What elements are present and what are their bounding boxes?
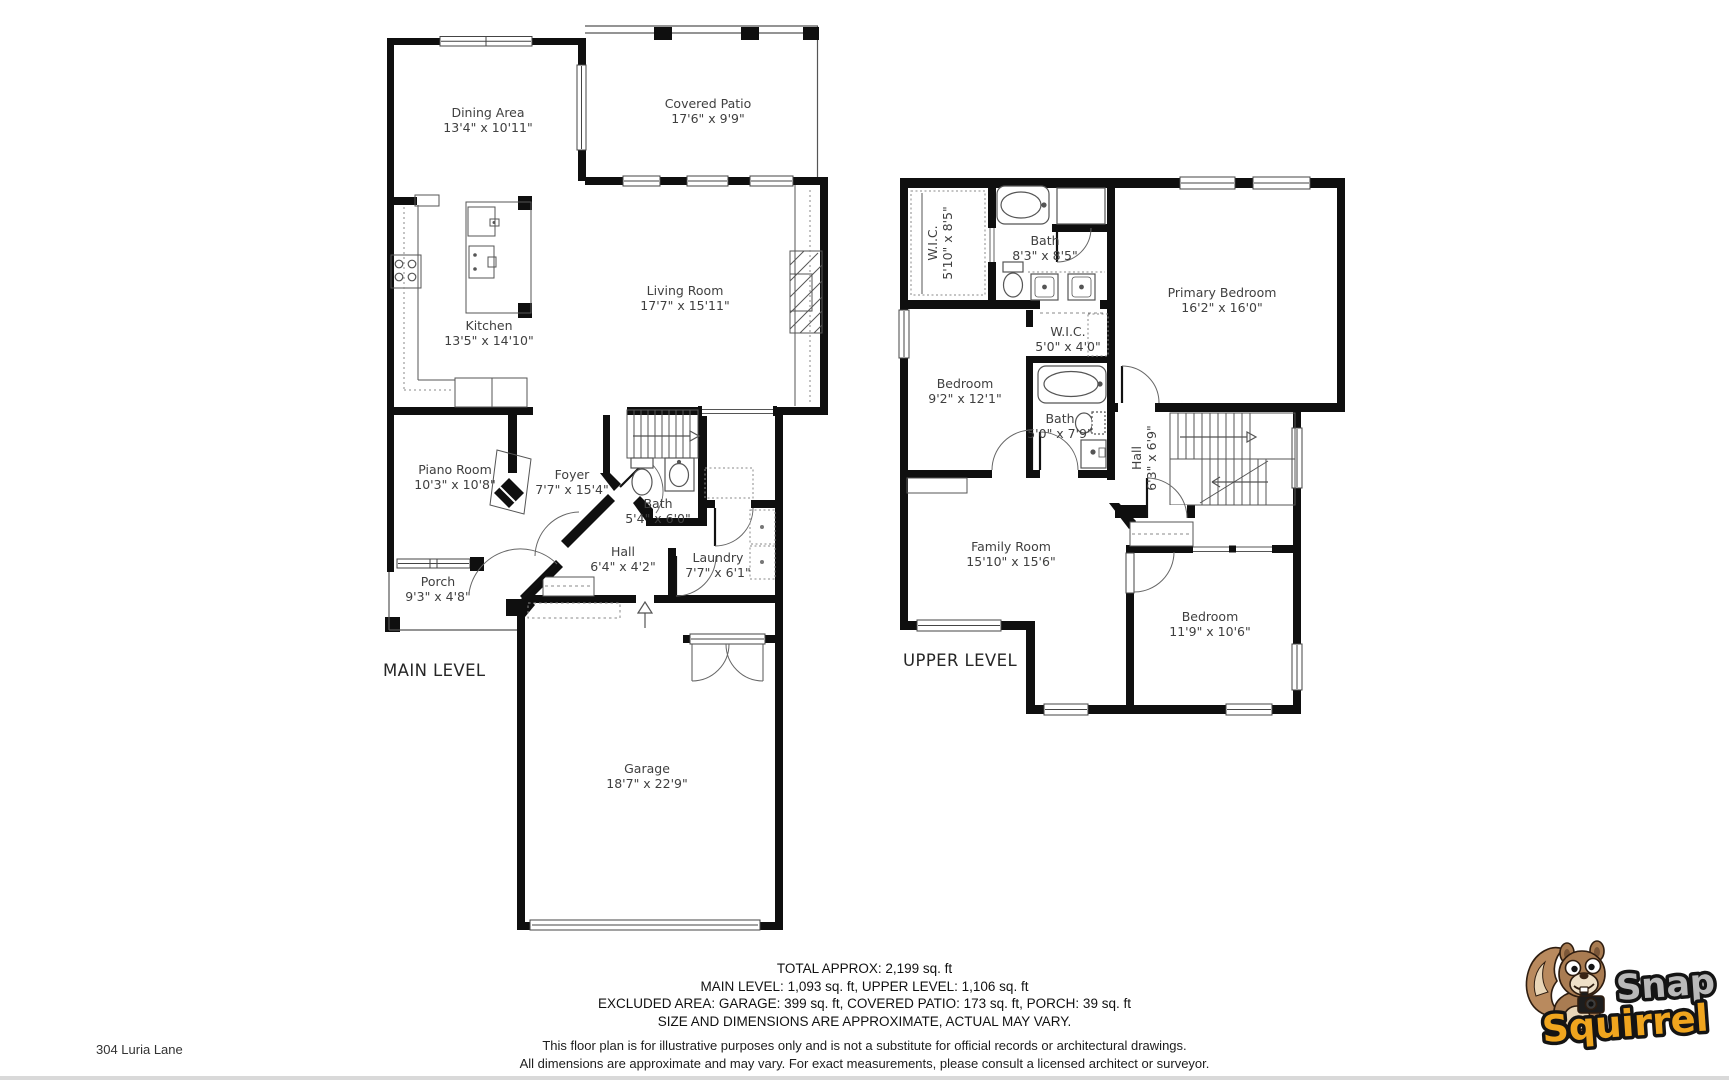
- porch-post: [470, 557, 484, 571]
- room-label-bedroom-3: Bedroom 11'9" x 10'6": [1169, 609, 1250, 639]
- floorplan-linework: [0, 0, 1729, 1080]
- upper-level-walls: [900, 178, 1345, 714]
- room-label-garage: Garage 18'7" x 22'9": [606, 761, 687, 791]
- logo-graphic: Snap Squirrel: [1521, 936, 1721, 1054]
- stove-burners: [395, 260, 416, 281]
- room-name: Bath: [625, 496, 691, 511]
- room-dims: 5'0" x 7'9": [1027, 426, 1093, 441]
- room-label-wic-2: W.I.C. 5'0" x 4'0": [1035, 324, 1101, 354]
- room-label-living-room: Living Room 17'7" x 15'11": [640, 283, 729, 313]
- kitchen-counters: [391, 195, 531, 407]
- toilet-bowl: [632, 469, 652, 495]
- summary-total: TOTAL APPROX: 2,199 sq. ft: [0, 960, 1729, 978]
- upper-stairs: [1170, 413, 1295, 505]
- sink-basin: [670, 464, 689, 487]
- room-dims: 6'3" x 6'9": [1144, 425, 1159, 491]
- room-name: W.I.C.: [925, 206, 940, 279]
- stairs-up-arrow: [1247, 432, 1256, 442]
- room-label-primary-bedroom: Primary Bedroom 16'2" x 16'0": [1168, 285, 1277, 315]
- toilet-bowl: [1004, 273, 1023, 297]
- toilet-tank: [1003, 262, 1023, 272]
- room-dims: 11'9" x 10'6": [1169, 624, 1250, 639]
- room-label-piano-room: Piano Room 10'3" x 10'8": [414, 462, 495, 492]
- garage-entry-door: [636, 595, 654, 628]
- room-label-foyer: Foyer 7'7" x 15'4": [535, 467, 608, 497]
- fireplace: [790, 185, 822, 406]
- garage-double-door: [690, 634, 765, 681]
- main-level-title: MAIN LEVEL: [383, 661, 486, 680]
- room-name: Covered Patio: [665, 96, 752, 111]
- room-name: Foyer: [535, 467, 608, 482]
- room-label-dining-area: Dining Area 13'4" x 10'11": [443, 105, 532, 135]
- room-label-covered-patio: Covered Patio 17'6" x 9'9": [665, 96, 752, 126]
- main-stairs: [627, 410, 698, 458]
- disclaimer-line-2: All dimensions are approximate and may v…: [0, 1055, 1729, 1073]
- room-name: Hall: [590, 544, 656, 559]
- room-dims: 5'4" x 6'0": [625, 511, 691, 526]
- room-dims: 5'0" x 4'0": [1035, 339, 1101, 354]
- upper-level-plan: [899, 177, 1345, 715]
- property-address: 304 Luria Lane: [96, 1042, 183, 1057]
- area-summary: TOTAL APPROX: 2,199 sq. ft MAIN LEVEL: 1…: [0, 960, 1729, 1030]
- room-name: Living Room: [640, 283, 729, 298]
- snap-squirrel-logo: Snap Squirrel: [1521, 936, 1721, 1058]
- summary-levels: MAIN LEVEL: 1,093 sq. ft, UPPER LEVEL: 1…: [0, 978, 1729, 996]
- room-label-upper-hall: Hall 6'3" x 6'9": [1129, 425, 1159, 491]
- room-label-laundry: Laundry 7'7" x 6'1": [685, 550, 751, 580]
- disclaimer: This floor plan is for illustrative purp…: [0, 1037, 1729, 1073]
- floorplan-page: Dining Area 13'4" x 10'11" Covered Patio…: [0, 0, 1729, 1080]
- room-name: Porch: [405, 574, 471, 589]
- room-dims: 13'5" x 14'10": [444, 333, 533, 348]
- room-dims: 10'3" x 10'8": [414, 477, 495, 492]
- room-label-main-hall: Hall 6'4" x 4'2": [590, 544, 656, 574]
- family-room-ledge: [907, 478, 967, 493]
- image-bottom-border: [0, 1076, 1729, 1080]
- room-name: Piano Room: [414, 462, 495, 477]
- room-dims: 15'10" x 15'6": [966, 554, 1055, 569]
- kitchen-dotted-lines: [404, 207, 453, 390]
- room-label-primary-bath: Bath 8'3" x 8'5": [1012, 233, 1078, 263]
- room-dims: 18'7" x 22'9": [606, 776, 687, 791]
- shower: [1057, 188, 1105, 224]
- room-label-kitchen: Kitchen 13'5" x 14'10": [444, 318, 533, 348]
- toilet-tank: [1092, 412, 1105, 434]
- room-label-primary-wic: W.I.C. 5'10" x 8'5": [925, 206, 955, 279]
- room-dims: 8'3" x 8'5": [1012, 248, 1078, 263]
- hall-closet: [543, 577, 594, 596]
- room-dims: 9'3" x 4'8": [405, 589, 471, 604]
- summary-note: SIZE AND DIMENSIONS ARE APPROXIMATE, ACT…: [0, 1013, 1729, 1031]
- main-bath-fixtures: [631, 458, 694, 495]
- room-name: Bedroom: [928, 376, 1001, 391]
- room-label-porch: Porch 9'3" x 4'8": [405, 574, 471, 604]
- room-name: Dining Area: [443, 105, 532, 120]
- room-dims: 7'7" x 15'4": [535, 482, 608, 497]
- room-dims: 7'7" x 6'1": [685, 565, 751, 580]
- upper-level-title: UPPER LEVEL: [903, 651, 1017, 670]
- room-label-hall-bath: Bath 5'0" x 7'9": [1027, 411, 1093, 441]
- room-name: W.I.C.: [1035, 324, 1101, 339]
- room-name: Kitchen: [444, 318, 533, 333]
- disclaimer-line-1: This floor plan is for illustrative purp…: [0, 1037, 1729, 1055]
- living-room-opening: [698, 406, 777, 416]
- room-dims: 6'4" x 4'2": [590, 559, 656, 574]
- room-dims: 9'2" x 12'1": [928, 391, 1001, 406]
- room-name: Bedroom: [1169, 609, 1250, 624]
- overhead-dashed-outline: [528, 603, 620, 618]
- room-name: Laundry: [685, 550, 751, 565]
- room-name: Bath: [1027, 411, 1093, 426]
- room-label-family-room: Family Room 15'10" x 15'6": [966, 539, 1055, 569]
- toilet-tank: [631, 458, 653, 468]
- room-dims: 13'4" x 10'11": [443, 120, 532, 135]
- room-dims: 17'7" x 15'11": [640, 298, 729, 313]
- room-name: Hall: [1129, 425, 1144, 491]
- room-label-bedroom-2: Bedroom 9'2" x 12'1": [928, 376, 1001, 406]
- room-dims: 16'2" x 16'0": [1168, 300, 1277, 315]
- room-dims: 17'6" x 9'9": [665, 111, 752, 126]
- room-label-main-bath: Bath 5'4" x 6'0": [625, 496, 691, 526]
- room-name: Garage: [606, 761, 687, 776]
- room-dims: 5'10" x 8'5": [940, 206, 955, 279]
- room-name: Bath: [1012, 233, 1078, 248]
- wic-slider-door: [990, 228, 994, 262]
- room-name: Family Room: [966, 539, 1055, 554]
- summary-excluded: EXCLUDED AREA: GARAGE: 399 sq. ft, COVER…: [0, 995, 1729, 1013]
- room-name: Primary Bedroom: [1168, 285, 1277, 300]
